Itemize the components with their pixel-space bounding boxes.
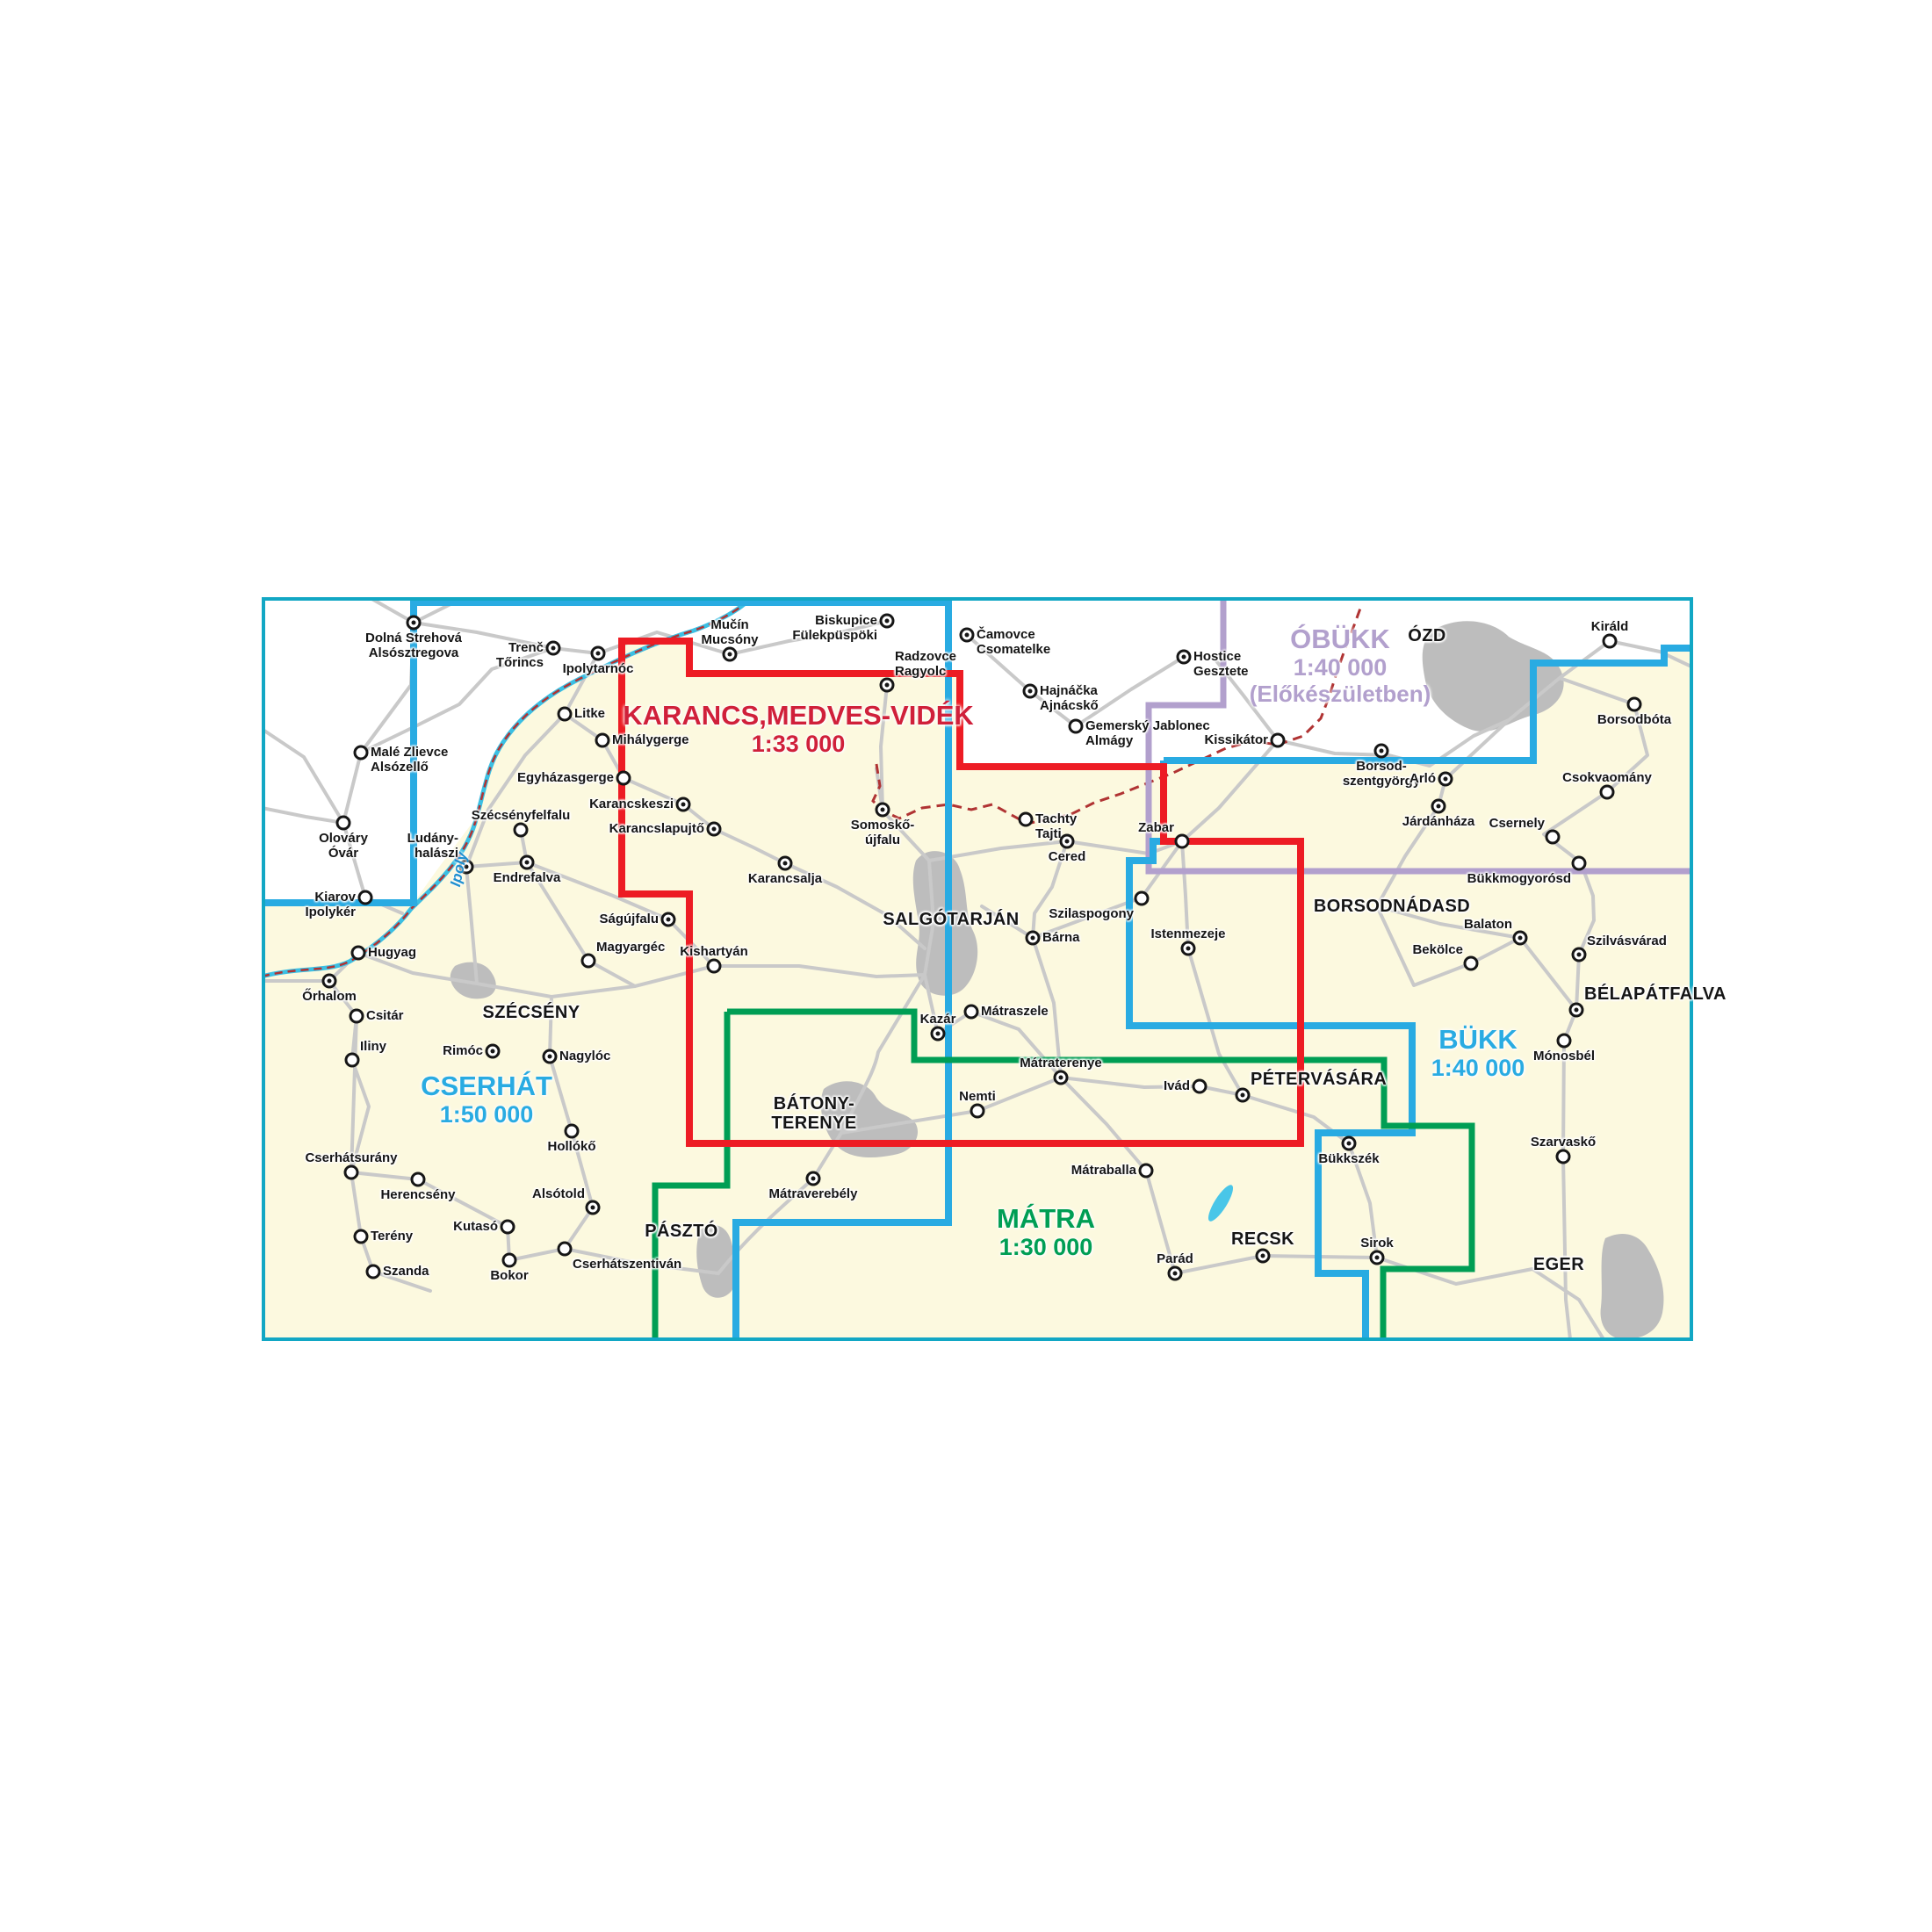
town-label: Borsodbóta: [1597, 712, 1671, 727]
town-label: Karancslapujtő: [609, 821, 704, 836]
town-label: Mátraszele: [981, 1004, 1049, 1019]
town-label: Somoskő-újfalu: [851, 818, 915, 847]
town-label: Karancskeszi: [589, 797, 674, 811]
town-marker-icon: [351, 946, 366, 961]
town-marker-icon: [1023, 684, 1038, 699]
region-title-bukk: BÜKK 1:40 000: [1431, 1025, 1525, 1081]
town-marker-icon: [411, 1172, 426, 1187]
town-marker-icon: [1438, 772, 1453, 787]
town-marker-icon: [1193, 1079, 1207, 1094]
town-marker-icon: [1342, 1136, 1357, 1151]
town-marker-icon: [354, 1229, 369, 1244]
town-label: RECSK: [1231, 1229, 1294, 1249]
town-label: Nagylóc: [559, 1049, 610, 1063]
town-label: Bükkszék: [1318, 1151, 1379, 1166]
town-label: BÉLAPÁTFALVA: [1584, 984, 1727, 1004]
region-note: (Előkészületben): [1250, 681, 1431, 707]
town-label: Ludány-halászi: [407, 831, 458, 861]
town-marker-icon: [960, 628, 975, 643]
town-marker-icon: [707, 959, 722, 974]
town-marker-icon: [354, 746, 369, 761]
towns-layer: Dolná StrehováAlsósztregovaTrenčTőrincsI…: [262, 597, 1693, 1341]
town-label: TrenčTőrincs: [496, 640, 544, 670]
town-label: Ipolytarnóc: [563, 661, 634, 676]
town-marker-icon: [1139, 1164, 1154, 1179]
town-marker-icon: [486, 1044, 501, 1059]
town-label: Bekölce: [1412, 942, 1463, 957]
town-label: Cserhátszentiván: [573, 1257, 681, 1272]
town-marker-icon: [345, 1053, 360, 1068]
town-label: Borsod-szentgyörgy: [1343, 759, 1420, 789]
town-label: Endrefalva: [494, 870, 561, 885]
town-label: Iliny: [360, 1039, 386, 1054]
town-label: Mátraverebély: [769, 1186, 858, 1201]
town-marker-icon: [876, 803, 890, 818]
town-label: Arló: [1409, 771, 1436, 786]
town-marker-icon: [707, 822, 722, 837]
region-scale: 1:40 000: [1431, 1055, 1525, 1081]
town-label: BÁTONY-TERENYE: [771, 1094, 856, 1133]
town-marker-icon: [1135, 891, 1150, 906]
town-marker-icon: [931, 1027, 946, 1042]
town-label: PÉTERVÁSÁRA: [1251, 1070, 1387, 1089]
town-label: Kishartyán: [680, 944, 748, 959]
town-label: Gemerský JablonecAlmágy: [1085, 718, 1210, 748]
town-marker-icon: [558, 707, 573, 722]
town-label: Nemti: [959, 1089, 996, 1104]
town-label: Kazár: [920, 1012, 956, 1027]
town-marker-icon: [1054, 1071, 1069, 1085]
town-marker-icon: [1370, 1251, 1385, 1265]
town-label: Istenmezeje: [1150, 926, 1225, 941]
town-label: Cserhátsurány: [305, 1150, 397, 1165]
town-label: HajnáčkaAjnácskő: [1040, 683, 1099, 713]
region-title-karancs: KARANCS,MEDVES-VIDÉK 1:33 000: [623, 701, 974, 757]
town-label: Ivád: [1164, 1078, 1190, 1093]
town-label: Királd: [1591, 619, 1629, 634]
town-marker-icon: [1181, 941, 1196, 956]
town-label: Egyházasgerge: [517, 770, 614, 785]
town-label: Hugyag: [368, 945, 416, 960]
town-marker-icon: [1627, 697, 1642, 712]
town-label: Őrhalom: [302, 989, 357, 1004]
town-marker-icon: [616, 771, 631, 786]
town-marker-icon: [1572, 856, 1587, 871]
town-marker-icon: [1603, 634, 1618, 649]
town-label: Csokvaomány: [1562, 770, 1652, 785]
town-marker-icon: [586, 1200, 601, 1215]
town-label: Szilaspogony: [1049, 906, 1134, 921]
town-label: Dolná StrehováAlsósztregova: [365, 631, 462, 660]
town-label: PÁSZTÓ: [645, 1222, 718, 1241]
town-label: Balaton: [1464, 917, 1512, 932]
town-marker-icon: [502, 1253, 517, 1268]
town-label: Terény: [371, 1229, 413, 1244]
town-label: Mátraterenye: [1020, 1056, 1101, 1071]
region-name: ÓBÜKK: [1250, 624, 1431, 654]
region-title-obukk: ÓBÜKK 1:40 000 (Előkészületben): [1250, 624, 1431, 707]
town-marker-icon: [1557, 1034, 1572, 1049]
town-label: Ságújfalu: [599, 912, 659, 926]
town-marker-icon: [723, 647, 738, 662]
town-marker-icon: [558, 1242, 573, 1257]
town-marker-icon: [1026, 931, 1041, 946]
town-label: Szilvásvárad: [1587, 934, 1667, 948]
town-label: HosticeGesztete: [1193, 649, 1249, 679]
town-marker-icon: [546, 641, 561, 656]
town-marker-icon: [407, 616, 422, 631]
town-label: BiskupiceFülekpüspöki: [792, 613, 877, 643]
town-marker-icon: [514, 823, 529, 838]
town-label: Herencsény: [380, 1187, 455, 1202]
region-name: MÁTRA: [997, 1204, 1095, 1234]
town-label: Cered: [1049, 849, 1086, 864]
town-label: Csernely: [1489, 816, 1545, 831]
town-label: ČamovceCsomatelke: [977, 627, 1050, 657]
town-label: Kissikátor: [1204, 732, 1268, 747]
town-label: Mónosbél: [1533, 1049, 1595, 1063]
town-label: Szanda: [383, 1264, 429, 1279]
town-marker-icon: [778, 856, 793, 871]
town-label: BORSODNÁDASD: [1314, 897, 1470, 916]
town-marker-icon: [1464, 956, 1479, 971]
town-label: Sirok: [1360, 1236, 1394, 1251]
town-marker-icon: [1236, 1088, 1251, 1103]
town-marker-icon: [1271, 733, 1286, 748]
region-scale: 1:40 000: [1250, 654, 1431, 681]
town-marker-icon: [880, 614, 895, 629]
town-marker-icon: [344, 1165, 359, 1180]
region-title-matra: MÁTRA 1:30 000: [997, 1204, 1095, 1260]
town-marker-icon: [581, 954, 596, 969]
region-name: BÜKK: [1431, 1025, 1525, 1055]
town-label: SALGÓTARJÁN: [883, 910, 1019, 929]
town-marker-icon: [1060, 834, 1075, 849]
town-label: Zabar: [1138, 820, 1174, 835]
town-label: Csitár: [366, 1008, 404, 1023]
town-label: Rimóc: [443, 1043, 483, 1058]
town-label: Járdánháza: [1402, 814, 1475, 829]
region-title-cserhat: CSERHÁT 1:50 000: [421, 1071, 552, 1128]
town-marker-icon: [661, 912, 676, 927]
region-scale: 1:33 000: [623, 731, 974, 757]
town-label: Kutasó: [453, 1219, 498, 1234]
town-marker-icon: [520, 855, 535, 870]
town-marker-icon: [1177, 650, 1192, 665]
town-marker-icon: [1168, 1266, 1183, 1281]
town-marker-icon: [1513, 931, 1528, 946]
town-marker-icon: [322, 974, 337, 989]
town-marker-icon: [501, 1220, 515, 1235]
town-marker-icon: [366, 1265, 381, 1280]
town-label: Hollókő: [548, 1139, 596, 1154]
town-label: Karancsalja: [748, 871, 822, 886]
town-marker-icon: [1600, 785, 1615, 800]
town-label: Parád: [1157, 1251, 1193, 1266]
region-name: KARANCS,MEDVES-VIDÉK: [623, 701, 974, 731]
town-marker-icon: [591, 646, 606, 661]
town-marker-icon: [350, 1009, 364, 1024]
town-marker-icon: [336, 816, 351, 831]
town-label: Magyargéc: [596, 940, 665, 955]
town-label: Szécsényfelfalu: [472, 808, 571, 823]
town-marker-icon: [1569, 1003, 1584, 1018]
town-label: Litke: [574, 706, 605, 721]
town-marker-icon: [1175, 834, 1190, 849]
town-marker-icon: [595, 733, 610, 748]
page: Dolná StrehováAlsósztregovaTrenčTőrincsI…: [0, 0, 1932, 1932]
town-label: Alsótold: [532, 1186, 585, 1201]
town-label: Bükkmogyorósd: [1467, 871, 1571, 886]
town-label: Mátraballa: [1071, 1163, 1136, 1178]
town-label: KiarovIpolykér: [305, 890, 356, 919]
town-marker-icon: [1019, 812, 1034, 827]
town-marker-icon: [1069, 719, 1084, 734]
town-marker-icon: [1374, 744, 1389, 759]
town-marker-icon: [358, 890, 373, 905]
region-name: CSERHÁT: [421, 1071, 552, 1101]
town-label: EGER: [1533, 1255, 1584, 1274]
town-marker-icon: [964, 1005, 979, 1020]
town-label: RadzovceRagyolc: [895, 649, 956, 679]
town-label: Malé ZlievceAlsózellő: [371, 745, 448, 775]
coverage-map: Dolná StrehováAlsósztregovaTrenčTőrincsI…: [262, 597, 1693, 1341]
region-scale: 1:50 000: [421, 1101, 552, 1128]
town-label: Bokor: [490, 1268, 528, 1283]
town-label: Szarvaskő: [1531, 1135, 1596, 1150]
town-marker-icon: [676, 797, 691, 812]
town-marker-icon: [970, 1104, 985, 1119]
town-marker-icon: [880, 678, 895, 693]
town-label: SZÉCSÉNY: [482, 1003, 580, 1022]
town-marker-icon: [1546, 830, 1561, 845]
town-label: Bárna: [1042, 930, 1080, 945]
town-marker-icon: [565, 1124, 580, 1139]
town-marker-icon: [1256, 1249, 1271, 1264]
town-marker-icon: [1431, 799, 1446, 814]
region-scale: 1:30 000: [997, 1234, 1095, 1260]
town-marker-icon: [1556, 1150, 1571, 1164]
town-marker-icon: [806, 1171, 821, 1186]
town-marker-icon: [1572, 948, 1587, 962]
town-label: OlováryÓvár: [319, 831, 368, 861]
town-marker-icon: [543, 1049, 558, 1064]
town-label: MučínMucsóny: [701, 617, 758, 647]
